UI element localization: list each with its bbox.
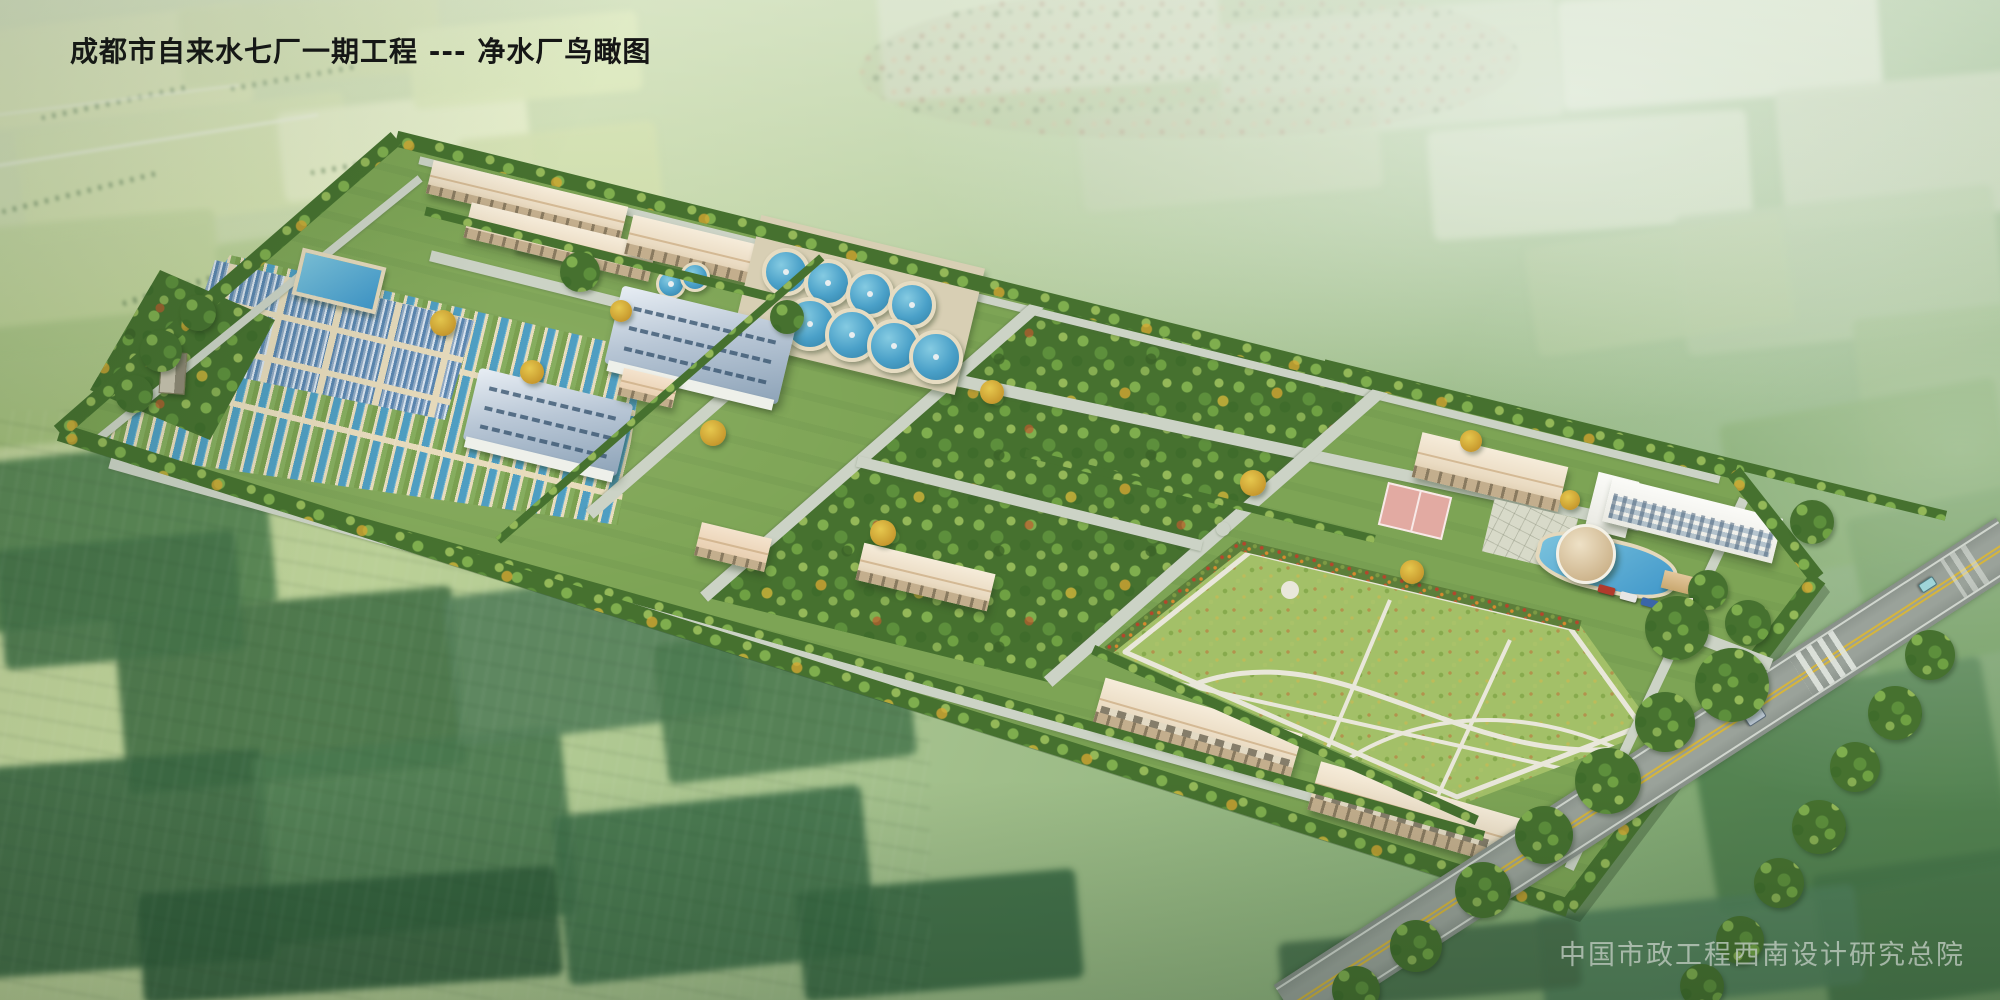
roadside-tree <box>1868 686 1922 740</box>
roadside-tree <box>1905 630 1955 680</box>
yellow-tree <box>980 380 1004 404</box>
circular-clarifier <box>909 330 963 384</box>
roadside-tree <box>1695 648 1769 722</box>
yellow-tree <box>1460 430 1482 452</box>
roadside-tree <box>1455 862 1511 918</box>
roadside-tree <box>1645 596 1709 660</box>
roadside-tree <box>1575 748 1641 814</box>
tree-blob <box>115 375 153 413</box>
yellow-tree <box>700 420 726 446</box>
tree-blob <box>1725 600 1771 646</box>
yellow-tree <box>1240 470 1266 496</box>
design-institute-attribution: 中国市政工程西南设计研究总院 <box>1559 933 1965 972</box>
plant-site <box>0 0 2000 1000</box>
yellow-tree <box>430 310 456 336</box>
roadside-tree <box>1390 920 1442 972</box>
tree-blob <box>770 300 804 334</box>
rendering-canvas: 成都市自来水七厂一期工程 --- 净水厂鸟瞰图 中国市政工程西南设计研究总院 <box>0 0 2000 1000</box>
roadside-tree <box>1635 692 1695 752</box>
yellow-tree <box>870 520 896 546</box>
tree-blob <box>140 330 182 372</box>
roadside-tree <box>1754 858 1804 908</box>
roadside-tree <box>1830 742 1880 792</box>
page-title: 成都市自来水七厂一期工程 --- 净水厂鸟瞰图 <box>70 30 651 70</box>
yellow-tree <box>1400 560 1424 584</box>
yellow-tree <box>1560 490 1580 510</box>
tree-blob <box>180 295 216 331</box>
road-junction <box>1216 522 1230 536</box>
round-pavilion <box>1556 524 1616 584</box>
yellow-tree <box>520 360 544 384</box>
tree-blob <box>560 252 600 292</box>
roadside-tree <box>1792 800 1846 854</box>
roadside-tree <box>1515 806 1573 864</box>
tree-blob <box>1790 500 1834 544</box>
yellow-tree <box>610 300 632 322</box>
